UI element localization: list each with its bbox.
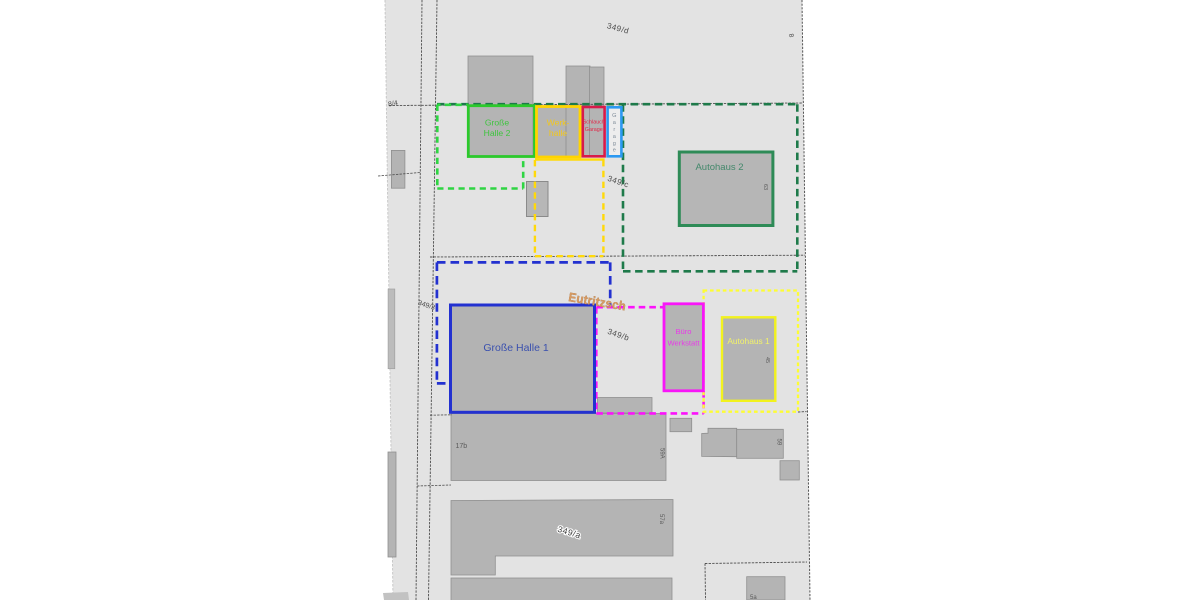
svg-text:59A: 59A: [659, 448, 665, 459]
svg-text:57a: 57a: [658, 514, 664, 525]
svg-text:59: 59: [776, 439, 782, 446]
svg-text:Garage: Garage: [585, 127, 603, 133]
svg-text:45: 45: [764, 357, 770, 363]
svg-text:Werk-: Werk-: [547, 118, 570, 128]
svg-text:Werkstatt: Werkstatt: [668, 339, 701, 348]
svg-text:Autohaus 2: Autohaus 2: [695, 162, 743, 173]
svg-text:G: G: [612, 113, 616, 119]
svg-text:5a: 5a: [750, 595, 757, 600]
svg-text:Halle 2: Halle 2: [484, 128, 511, 138]
svg-text:Autohaus 1: Autohaus 1: [727, 336, 770, 346]
svg-text:Schlauch: Schlauch: [583, 120, 605, 126]
svg-text:Große: Große: [485, 118, 510, 128]
svg-text:e: e: [613, 148, 616, 154]
svg-text:r: r: [613, 127, 615, 133]
svg-text:halle: halle: [549, 128, 567, 138]
svg-text:63: 63: [762, 184, 768, 190]
svg-text:g: g: [613, 141, 616, 147]
svg-text:Große Halle 1: Große Halle 1: [483, 342, 549, 354]
svg-text:Büro: Büro: [675, 327, 691, 336]
svg-text:17b: 17b: [456, 443, 468, 450]
